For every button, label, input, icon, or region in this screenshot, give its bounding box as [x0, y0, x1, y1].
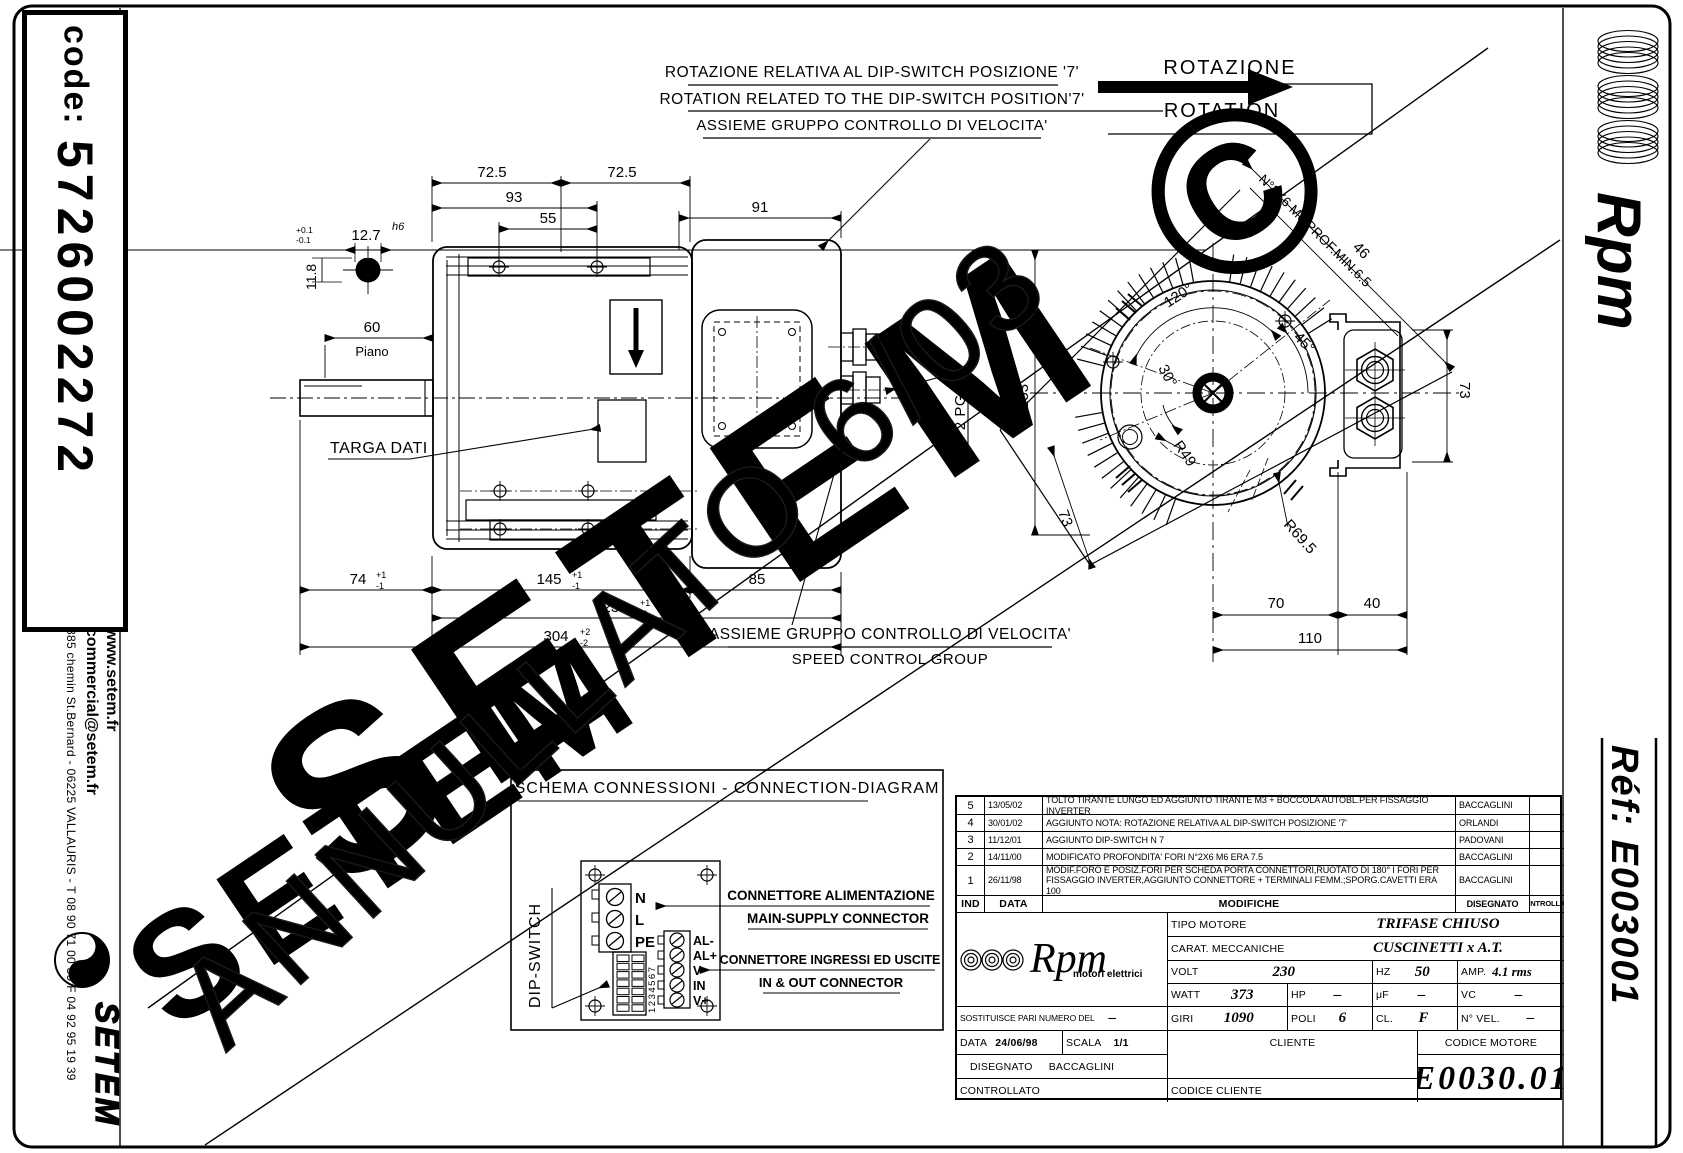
rev-1-ind: 1 — [957, 865, 984, 895]
tol-p01: +0.1 — [296, 225, 313, 235]
rev-1-text: MODIF.FORO E POSIZ.FORI PER SCHEDA PORTA… — [1042, 865, 1455, 895]
dim-230: 230 — [602, 599, 627, 616]
tb-uf-cell: μF – — [1372, 983, 1457, 1006]
dim-153: ⌀153 — [1015, 384, 1032, 418]
rpm-brand-right: Rpm — [1584, 192, 1653, 330]
rev-2-ind: 2 — [957, 848, 984, 865]
note-rotation-it: ROTAZIONE RELATIVA AL DIP-SWITCH POSIZIO… — [665, 64, 1079, 81]
rotation-label: ROTATION — [1164, 100, 1280, 122]
tb-hp-label: HP — [1291, 989, 1306, 1001]
note-group-top: ASSIEME GRUPPO CONTROLLO DI VELOCITA' — [696, 117, 1047, 134]
drawing-sheet: SETEM © SETEM ANNULLATO 6/03 ROTAZIONE R… — [0, 0, 1683, 1153]
tb-amp-label: AMP. — [1461, 966, 1486, 978]
main-connector-en: MAIN-SUPPLY CONNECTOR — [747, 911, 929, 926]
tb-tipo-label: TIPO MOTORE — [1167, 912, 1312, 936]
tb-cl-value: F — [1418, 1010, 1428, 1027]
group-bottom-it: ASSIEME GRUPPO CONTROLLO DI VELOCITA' — [709, 626, 1071, 643]
tb-watt-label: WATT — [1171, 989, 1200, 1001]
rev-1-by: BACCAGLINI — [1455, 865, 1529, 895]
tb-giri-value: 1090 — [1224, 1010, 1254, 1027]
rev-header-controllato: CONTROLLATO — [1529, 895, 1564, 912]
rpm-coils-icon — [1598, 31, 1658, 164]
terminal-pe: PE — [635, 934, 655, 951]
terminal-in: IN — [693, 979, 706, 993]
tb-scala-label: SCALA — [1066, 1037, 1101, 1049]
tb-hz-label: HZ — [1376, 966, 1390, 978]
tb-watt-cell: WATT 373 — [1167, 983, 1287, 1006]
tb-watt-value: 373 — [1231, 987, 1254, 1004]
dim-304-tm: -2 — [580, 638, 588, 648]
dim-60: 60 — [364, 319, 381, 336]
tb-data-label: DATA — [960, 1037, 987, 1049]
tb-codice-motore-header: CODICE MOTORE — [1417, 1030, 1564, 1054]
address-strip: www.setem.fr commercial@setem.fr 885 che… — [24, 628, 120, 1148]
dim-11-8: 11.8 — [303, 264, 319, 290]
tb-nvel-cell: N° VEL. – — [1457, 1006, 1564, 1030]
dip-numbers: 1234567 — [647, 966, 658, 1013]
rev-3-text: AGGIUNTO DIP-SWITCH N 7 — [1042, 831, 1455, 848]
tb-carat-value: CUSCINETTI x A.T. — [1312, 936, 1564, 960]
dip-switch-label: DIP-SWITCH — [527, 903, 544, 1008]
rev-3-by: PADOVANI — [1455, 831, 1529, 848]
tb-volt-label: VOLT — [1171, 966, 1198, 978]
website: www.setem.fr — [102, 628, 120, 1148]
rev-3-date: 11/12/01 — [984, 831, 1042, 848]
tb-vc-label: VC — [1461, 989, 1476, 1001]
dim-110: 110 — [1298, 630, 1322, 647]
code-label: code: — [56, 25, 95, 126]
tb-giri-label: GIRI — [1171, 1013, 1193, 1025]
dim-230-tp: +1 — [640, 598, 650, 608]
tb-amp-cell: AMP. 4.1 rms — [1457, 960, 1564, 983]
tb-sost-label: SOSTITUISCE PARI NUMERO DEL — [960, 1014, 1095, 1024]
postal-address: 885 chemin St.Bernard - 06225 VALLAURIS … — [64, 628, 78, 1148]
code-box: code: 5726002272 — [22, 10, 128, 632]
rev-5-ind: 5 — [957, 797, 984, 814]
tb-nvel-label: N° VEL. — [1461, 1013, 1500, 1025]
dim-74-tm: -1 — [376, 581, 384, 591]
rev-4-ind: 4 — [957, 814, 984, 831]
shaft-key-detail: 12.7 h6 +0.1 -0.1 11.8 — [296, 221, 405, 294]
rev-4-date: 30/01/02 — [984, 814, 1042, 831]
rev-2-text: MODIFICATO PROFONDITA' FORI N°2X6 M6 ERA… — [1042, 848, 1455, 865]
dim-72-5-right: 72.5 — [607, 164, 636, 181]
dim-40: 40 — [1364, 595, 1381, 612]
tb-disegnato-cell: DISEGNATO BACCAGLINI — [957, 1054, 1167, 1078]
tol-m01: -0.1 — [296, 235, 311, 245]
rev-3-ind: 3 — [957, 831, 984, 848]
terminal-n: N — [635, 890, 646, 907]
targa-dati-label: TARGA DATI — [328, 428, 600, 459]
rotation-arrow — [1098, 81, 1248, 93]
tb-controllato-cell: CONTROLLATO — [957, 1078, 1167, 1102]
dim-145: 145 — [536, 571, 561, 588]
tb-uf-value: – — [1418, 987, 1426, 1004]
rev-1-date: 26/11/98 — [984, 865, 1042, 895]
tb-disegnato-label: DISEGNATO — [970, 1061, 1033, 1073]
dim-45deg: 45° — [1290, 329, 1318, 357]
terminal-v-minus: V- — [693, 964, 705, 978]
tb-brand-sub: motori elettrici — [1073, 969, 1142, 980]
rev-2-date: 14/11/00 — [984, 848, 1042, 865]
dim-70: 70 — [1268, 595, 1285, 612]
terminal-al-plus: AL+ — [693, 949, 717, 963]
group-bottom-en: SPEED CONTROL GROUP — [792, 651, 988, 668]
rev-header-disegnato: DISEGNATO — [1455, 895, 1529, 912]
dim-h6: h6 — [392, 221, 405, 233]
rev-3-ctrl — [1529, 831, 1564, 848]
email: commercial@setem.fr — [82, 628, 100, 1148]
dim-12-7: 12.7 — [351, 227, 380, 244]
rev-5-ctrl — [1529, 797, 1564, 814]
rotazione-label: ROTAZIONE — [1163, 57, 1296, 79]
pg9-text: N°2 PG9 — [952, 385, 969, 448]
tb-hz-cell: HZ 50 — [1372, 960, 1457, 983]
tb-cliente-value — [1167, 1054, 1417, 1078]
tb-poli-cell: POLI 6 — [1287, 1006, 1372, 1030]
tb-vc-value: – — [1515, 987, 1523, 1004]
dim-85: 85 — [749, 571, 766, 588]
rev-5-date: 13/05/02 — [984, 797, 1042, 814]
dim-72-5-left: 72.5 — [477, 164, 506, 181]
right-margin: Rpm Réf: E003001 — [1584, 31, 1658, 1149]
rev-5-by: BACCAGLINI — [1455, 797, 1529, 814]
rev-header-data: DATA — [984, 895, 1042, 912]
tb-giri-cell: GIRI 1090 — [1167, 1006, 1287, 1030]
tb-disegnato-value: BACCAGLINI — [1049, 1061, 1115, 1073]
rev-5-text: TOLTO TIRANTE LUNGO ED AGGIUNTO TIRANTE … — [1042, 797, 1455, 814]
rev-4-text: AGGIUNTO NOTA: ROTAZIONE RELATIVA AL DIP… — [1042, 814, 1455, 831]
dim-304: 304 — [543, 628, 568, 645]
tb-volt-cell: VOLT 230 — [1167, 960, 1372, 983]
io-connector-en: IN & OUT CONNECTOR — [759, 975, 904, 990]
tb-poli-value: 6 — [1339, 1010, 1347, 1027]
rev-2-by: BACCAGLINI — [1455, 848, 1529, 865]
note-rotation-en: ROTATION RELATED TO THE DIP-SWITCH POSIT… — [659, 91, 1084, 108]
main-connector-it: CONNETTORE ALIMENTAZIONE — [727, 888, 935, 903]
dim-r69-5: R69.5 — [1280, 516, 1319, 557]
tb-volt-value: 230 — [1272, 964, 1295, 981]
tb-scala-value: 1/1 — [1113, 1037, 1128, 1049]
rev-4-ctrl — [1529, 814, 1564, 831]
tb-poli-label: POLI — [1291, 1013, 1316, 1025]
tb-codice-motore-value: E0030.01 — [1417, 1054, 1564, 1102]
dim-74-tp: +1 — [376, 570, 386, 580]
tb-hz-value: 50 — [1415, 964, 1430, 981]
tb-sost-value: – — [1109, 1010, 1117, 1027]
tb-tipo-value: TRIFASE CHIUSO — [1312, 912, 1564, 936]
rev-4-by: ORLANDI — [1455, 814, 1529, 831]
tb-hp-cell: HP – — [1287, 983, 1372, 1006]
code-value: 5726002272 — [46, 140, 104, 478]
tb-sost-cell: SOSTITUISCE PARI NUMERO DEL – — [957, 1006, 1167, 1030]
dim-93: 93 — [506, 189, 523, 206]
dim-91: 91 — [752, 199, 769, 216]
tb-scala-cell: SCALA 1/1 — [1062, 1030, 1167, 1054]
tb-cl-cell: CL. F — [1372, 1006, 1457, 1030]
tb-cl-label: CL. — [1376, 1013, 1393, 1025]
connection-title: SCHEMA CONNESSIONI - CONNECTION-DIAGRAM — [515, 780, 940, 797]
dim-304-tp: +2 — [580, 627, 590, 637]
tb-data-value: 24/06/98 — [995, 1037, 1037, 1049]
tb-amp-value: 4.1 rms — [1492, 964, 1532, 980]
dim-piano: Piano — [355, 344, 388, 359]
tb-brand-cell: Rpm motori elettrici — [957, 912, 1167, 1006]
title-block: 5 13/05/02 TOLTO TIRANTE LUNGO ED AGGIUN… — [955, 795, 1562, 1100]
tb-nvel-value: – — [1527, 1010, 1535, 1027]
tb-vc-cell: VC – — [1457, 983, 1564, 1006]
dim-230-tm: -1 — [640, 609, 648, 619]
tb-carat-label: CARAT. MECCANICHE — [1167, 936, 1312, 960]
dim-73-right: 73 — [1456, 382, 1473, 399]
rev-header-ind: IND — [957, 895, 984, 912]
dim-145-tm: -1 — [572, 581, 580, 591]
rev-header-modifiche: MODIFICHE — [1042, 895, 1455, 912]
tb-uf-label: μF — [1376, 989, 1389, 1001]
rev-1-ctrl — [1529, 865, 1564, 895]
connection-diagram: SCHEMA CONNESSIONI - CONNECTION-DIAGRAM … — [511, 770, 943, 1030]
tb-hp-value: – — [1334, 987, 1342, 1004]
ref-label: Réf: E003001 — [1603, 745, 1645, 1006]
terminal-al-minus: AL- — [693, 934, 714, 948]
tb-codice-cliente-cell: CODICE CLIENTE — [1167, 1078, 1417, 1102]
dim-55: 55 — [540, 210, 557, 227]
tb-data-cell: DATA 24/06/98 — [957, 1030, 1062, 1054]
rev-2-ctrl — [1529, 848, 1564, 865]
dim-145-tp: +1 — [572, 570, 582, 580]
terminal-l: L — [635, 912, 644, 929]
rpm-coils-small-icon — [960, 937, 1024, 983]
dim-74: 74 — [350, 571, 367, 588]
targa-dati-text: TARGA DATI — [330, 440, 428, 457]
io-connector-it: CONNETTORE INGRESSI ED USCITE — [720, 953, 941, 967]
tb-cliente-header: CLIENTE — [1167, 1030, 1417, 1054]
